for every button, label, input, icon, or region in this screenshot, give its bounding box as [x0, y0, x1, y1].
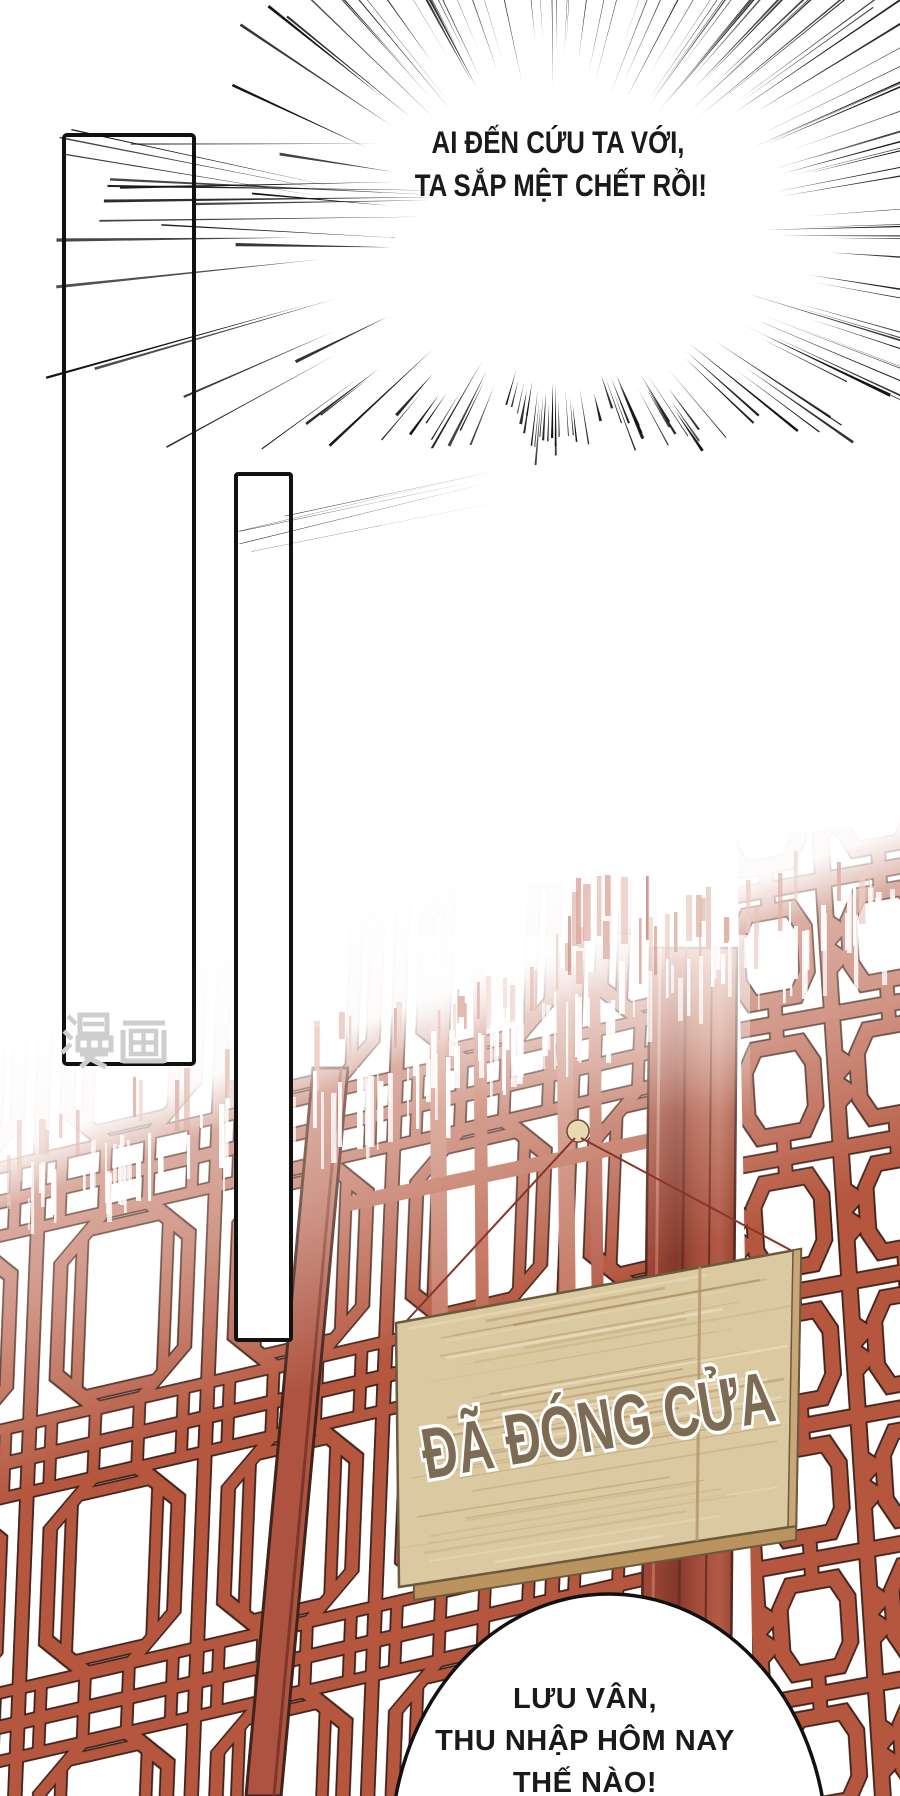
svg-text:LƯU VÂN,: LƯU VÂN, — [513, 1681, 657, 1715]
svg-text:THU NHẬP HÔM NAY: THU NHẬP HÔM NAY — [435, 1723, 735, 1757]
svg-text:TA SẮP MỆT CHẾT RỒI!: TA SẮP MỆT CHẾT RỒI! — [415, 166, 707, 203]
svg-text:AI ĐẾN CỨU TA VỚI,: AI ĐẾN CỨU TA VỚI, — [432, 123, 685, 160]
svg-text:THẾ NÀO!: THẾ NÀO! — [513, 1765, 657, 1796]
